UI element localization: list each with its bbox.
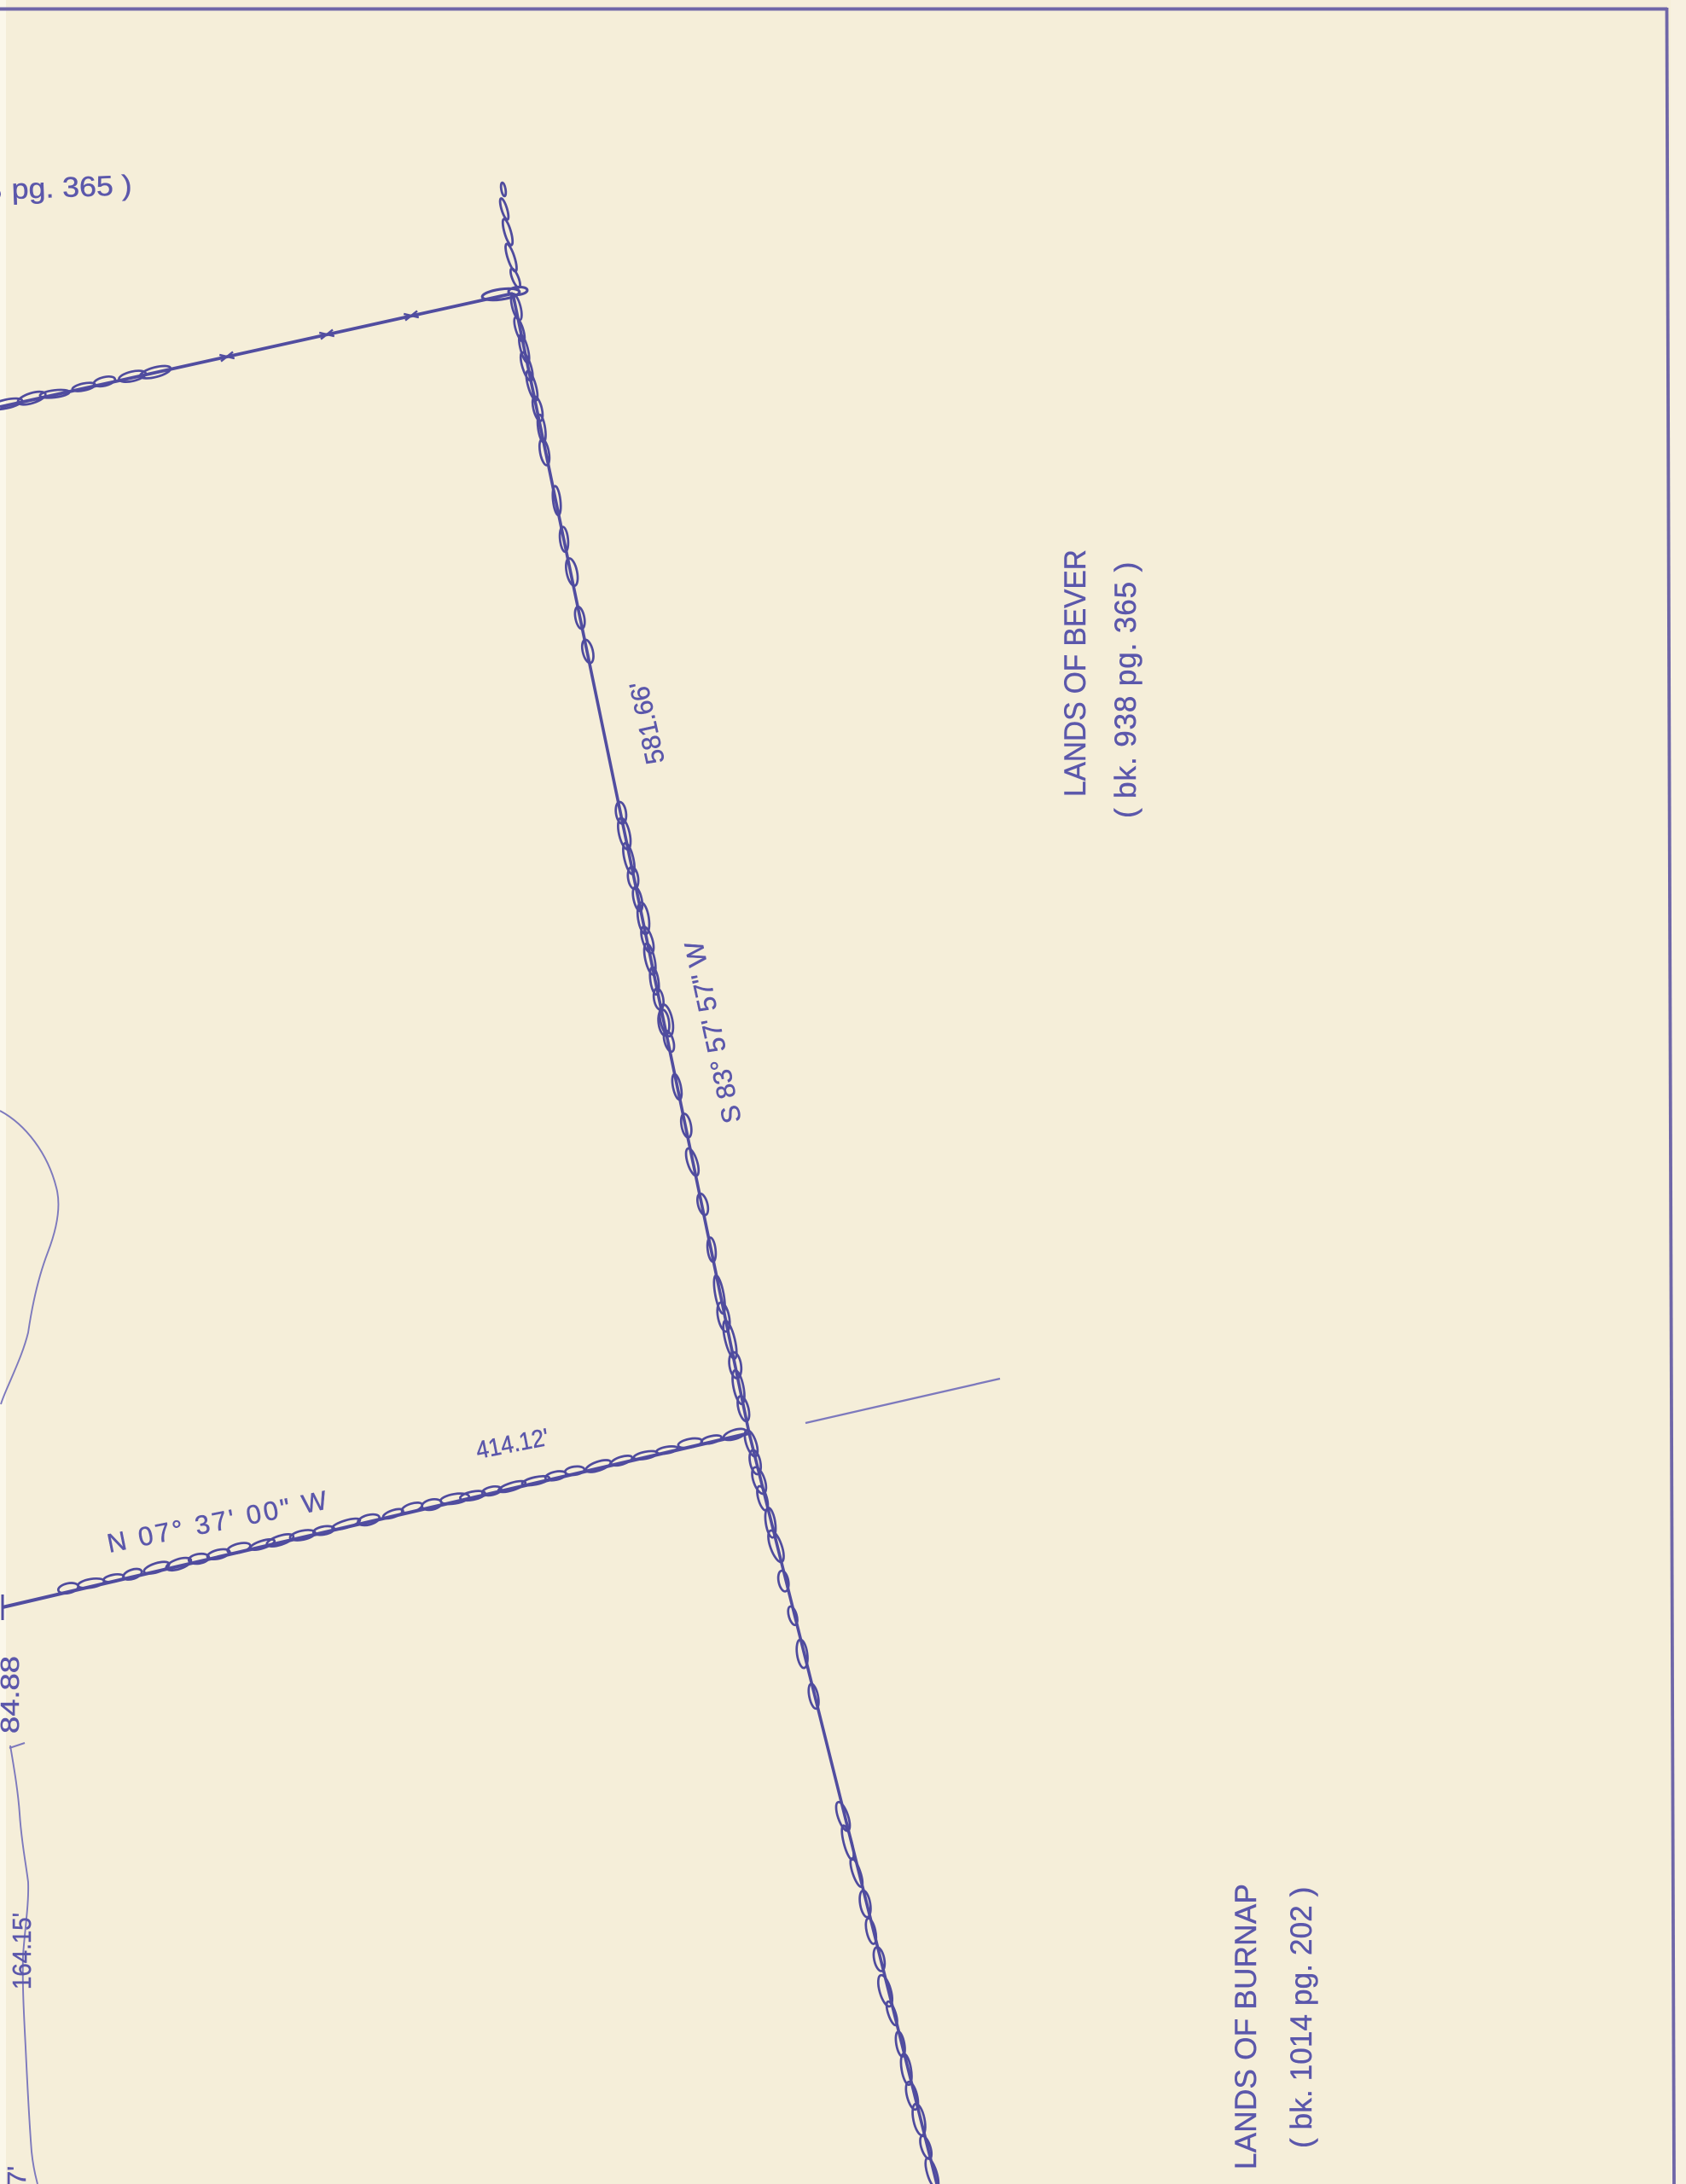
- svg-text:pg. 365 ): pg. 365 ): [11, 169, 132, 205]
- svg-text:LANDS OF BEVER: LANDS OF BEVER: [1059, 549, 1092, 797]
- svg-text:84.88: 84.88: [0, 1656, 25, 1734]
- svg-text:7': 7': [2, 2166, 32, 2184]
- svg-text:LANDS OF BURNAP: LANDS OF BURNAP: [1230, 1884, 1263, 2169]
- svg-text:( bk. 938 pg. 365 ): ( bk. 938 pg. 365 ): [1109, 561, 1142, 818]
- svg-text:( bk. 1014 pg. 202 ): ( bk. 1014 pg. 202 ): [1285, 1886, 1318, 2148]
- svg-text:164.15': 164.15': [7, 1913, 37, 1989]
